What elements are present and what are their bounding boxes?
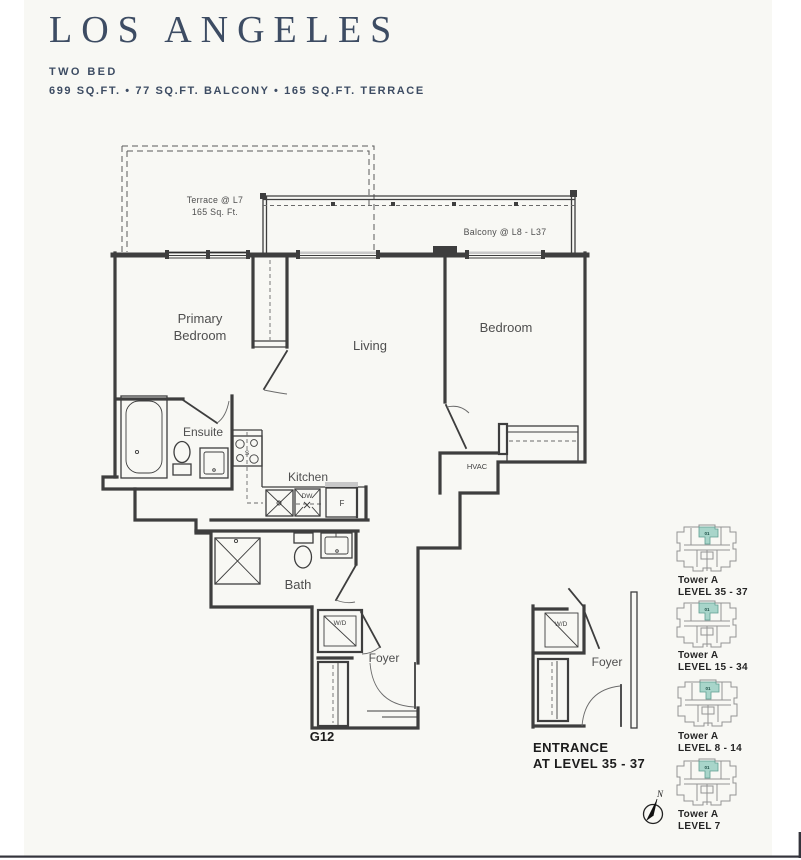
keyplan-level-label: LEVEL 35 - 37 (678, 587, 748, 598)
keyplan-tower-label: Tower A (678, 575, 718, 586)
bath-label: Bath (285, 577, 312, 592)
floorplan-page: LOS ANGELES TWO BED 699 SQ.FT. • 77 SQ.F… (0, 0, 801, 860)
keyplan-level-label: LEVEL 8 - 14 (678, 743, 742, 754)
washer-dryer-label: W/D (334, 620, 347, 627)
keyplan-unit-number: 01 (704, 531, 710, 536)
hvac-label: HVAC (467, 462, 488, 471)
fridge-label: F (340, 499, 345, 508)
unit-number-label: G12 (310, 729, 335, 744)
primary-bedroom-label-line1: Primary (178, 311, 223, 326)
entrance-washer-dryer-label: W/D (555, 621, 568, 628)
floorplan-drawing: Terrace @ L7 165 Sq. Ft. Balcony @ L8 - … (0, 0, 801, 860)
keyplan-unit-number: 01 (704, 607, 710, 612)
terrace-label-line2: 165 Sq. Ft. (192, 207, 238, 217)
keyplan-tower-label: Tower A (678, 650, 718, 661)
balcony-label: Balcony @ L8 - L37 (464, 227, 547, 237)
dishwasher-label: DW (302, 493, 314, 500)
page-bottom-border (0, 856, 801, 858)
entrance-caption-line1: ENTRANCE (533, 740, 608, 755)
kitchen-label: Kitchen (288, 470, 328, 484)
foyer-label: Foyer (369, 651, 400, 665)
living-label: Living (353, 338, 387, 353)
keyplan-level-15-34: 01 Tower A LEVEL 15 - 34 (677, 601, 748, 673)
keyplan-tower-label: Tower A (678, 809, 718, 820)
terrace-label-line1: Terrace @ L7 (187, 195, 244, 205)
sink-icon (200, 448, 228, 478)
toilet-icon (173, 442, 191, 476)
keyplan-level-35-37: 01 Tower A LEVEL 35 - 37 (677, 525, 748, 598)
toilet-icon (294, 533, 313, 568)
keyplan-unit-number: 01 (704, 765, 710, 770)
sink-icon (321, 533, 352, 558)
entrance-foyer-label: Foyer (592, 655, 623, 669)
keyplan-unit-number: 01 (705, 686, 711, 691)
keyplan-level-8-14: 01 Tower A LEVEL 8 - 14 (678, 680, 742, 754)
keyplan-level-7: 01 Tower A LEVEL 7 (677, 759, 736, 832)
north-label: N (656, 789, 664, 799)
stove-label: S (245, 450, 250, 457)
primary-bedroom-label-line2: Bedroom (174, 328, 227, 343)
bath-fixtures (215, 533, 352, 584)
compass-icon (644, 799, 663, 824)
foyer-closet (318, 662, 348, 726)
entrance-caption-line2: AT LEVEL 35 - 37 (533, 756, 645, 771)
keyplan-level-label: LEVEL 15 - 34 (678, 662, 748, 673)
shower-icon (215, 538, 260, 584)
bathtub-icon (121, 396, 167, 478)
ensuite-label: Ensuite (183, 425, 223, 439)
laundry-closet (318, 610, 380, 654)
balcony-railing (260, 190, 577, 253)
keyplan-tower-label: Tower A (678, 731, 718, 742)
keyplan-level-label: LEVEL 7 (678, 821, 721, 832)
bedroom-label: Bedroom (480, 320, 533, 335)
unit-top-wall (113, 246, 587, 259)
kitchen-sink-icon (266, 490, 293, 516)
